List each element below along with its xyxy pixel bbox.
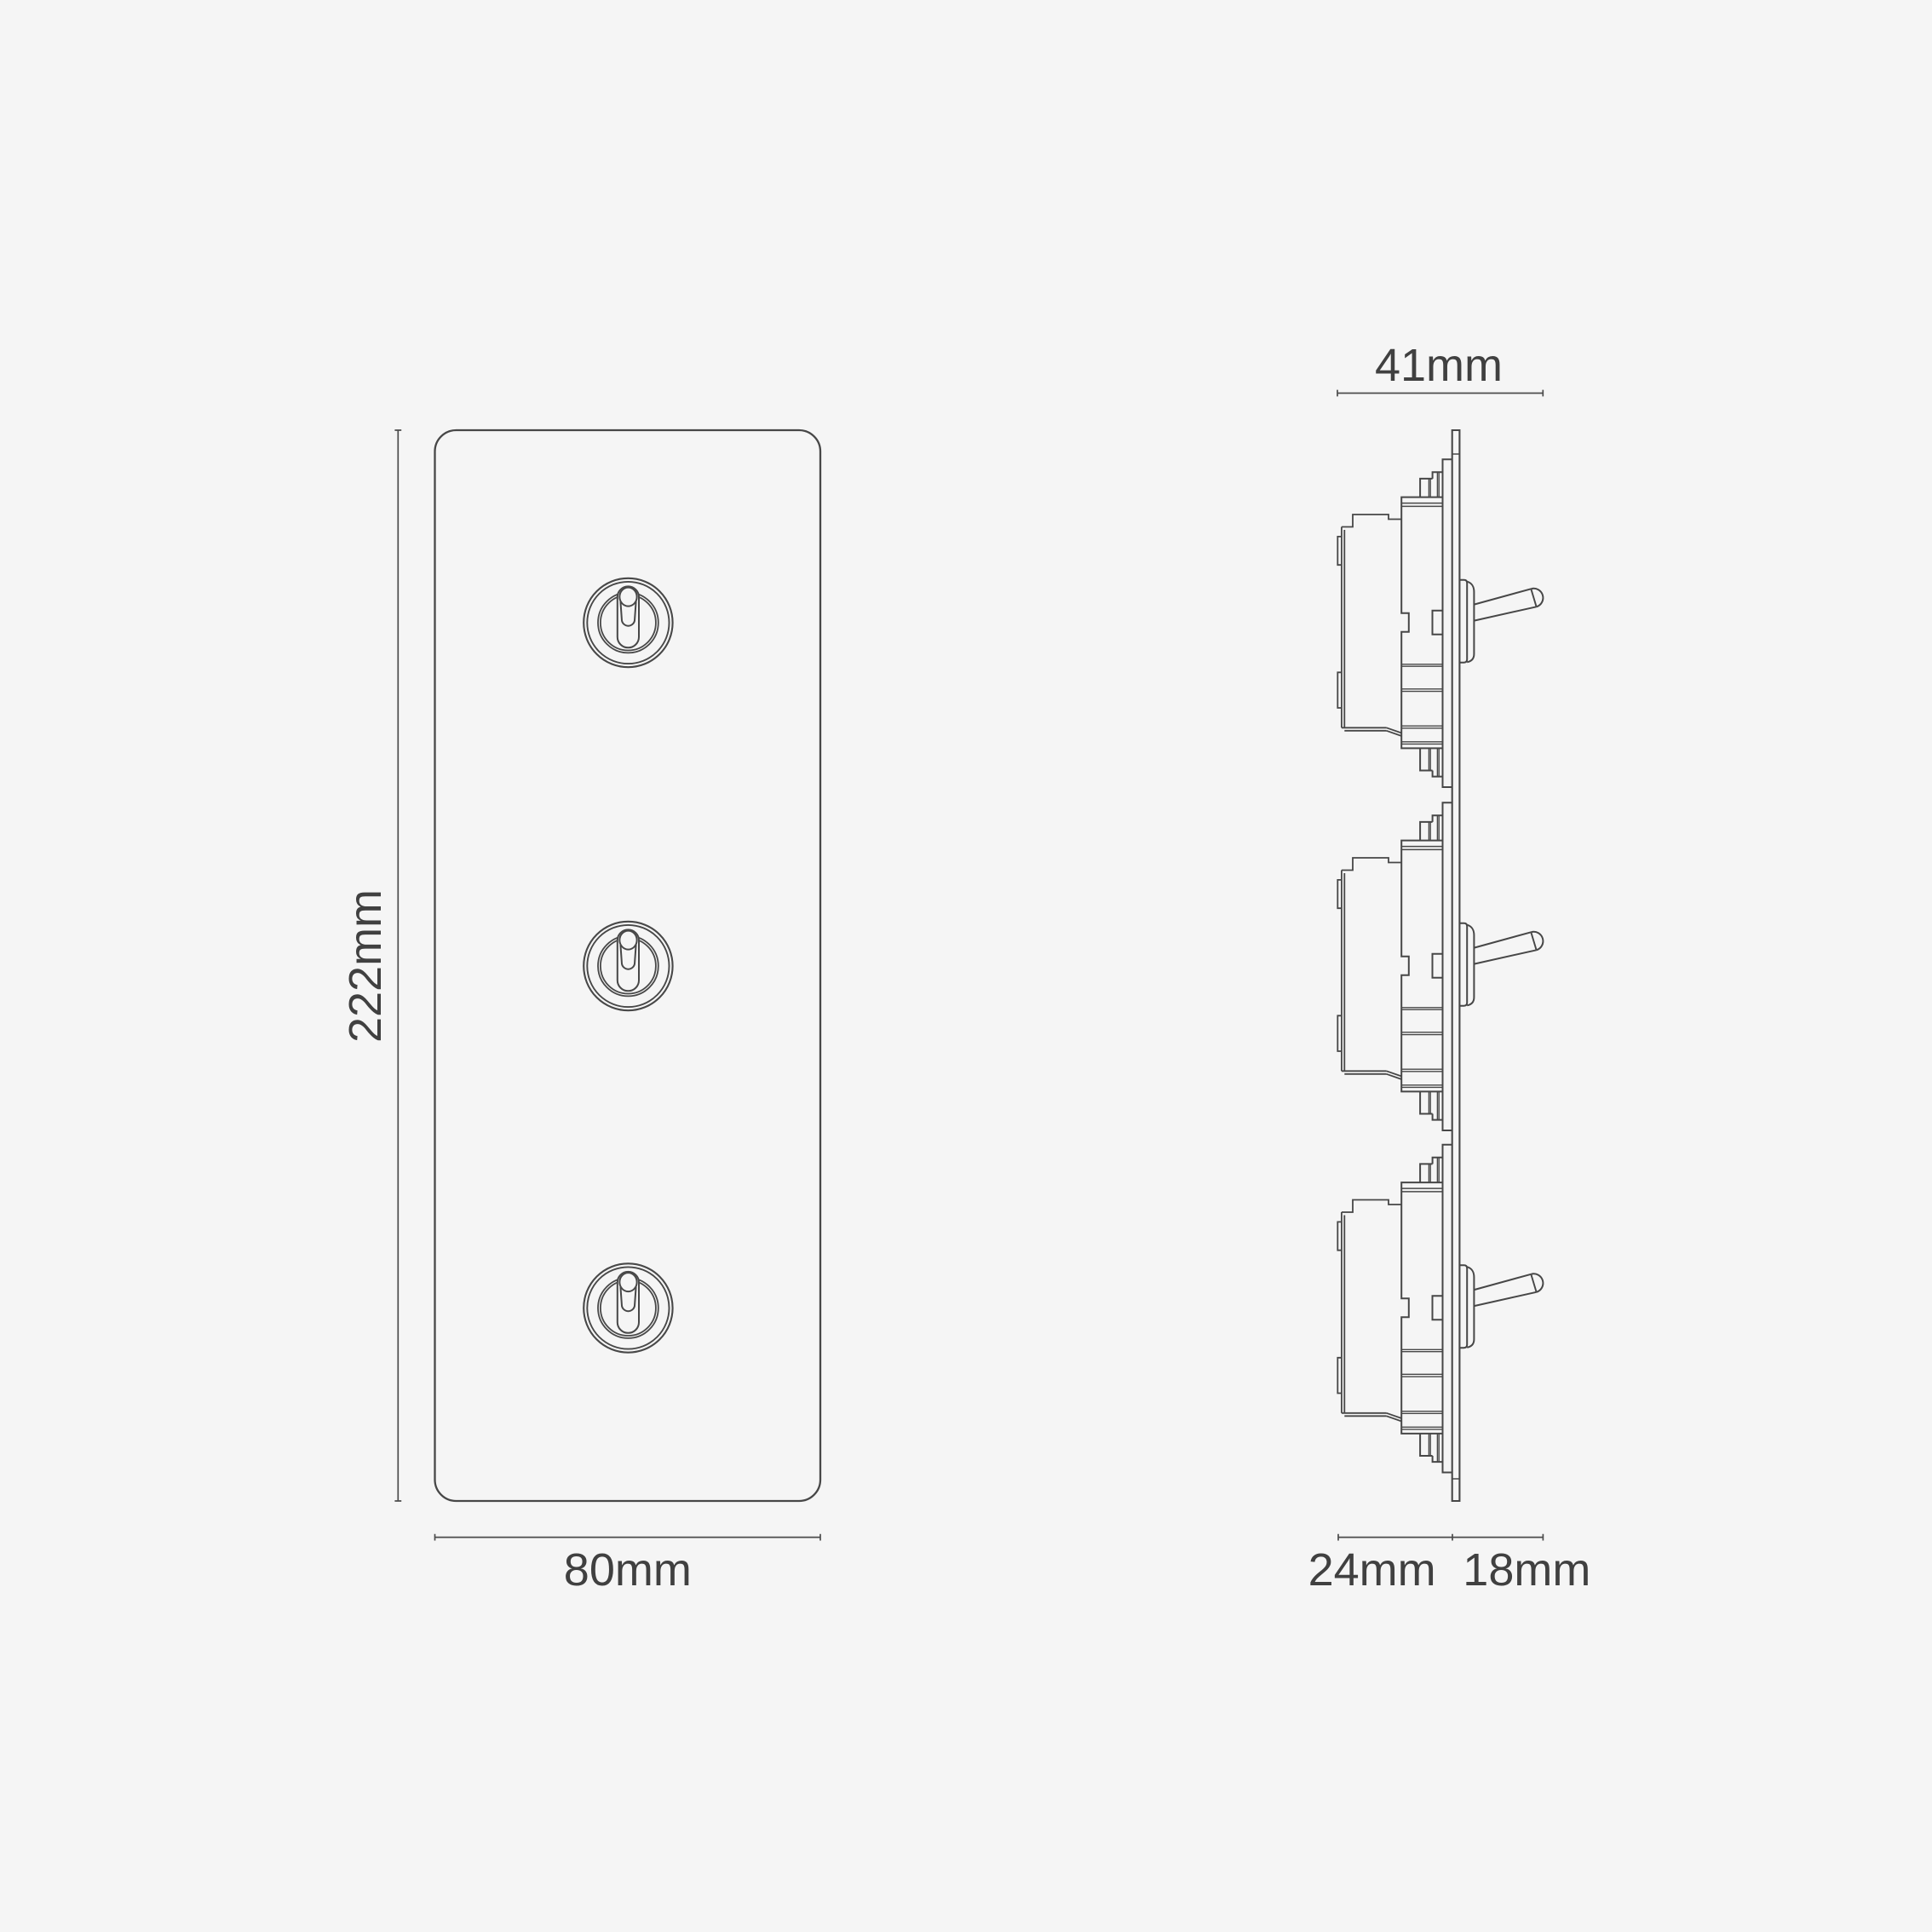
svg-text:24mm: 24mm [1308,1544,1436,1596]
svg-text:18mm: 18mm [1463,1544,1590,1596]
svg-text:80mm: 80mm [564,1544,692,1596]
svg-text:222mm: 222mm [340,889,391,1043]
svg-text:41mm: 41mm [1375,340,1503,391]
